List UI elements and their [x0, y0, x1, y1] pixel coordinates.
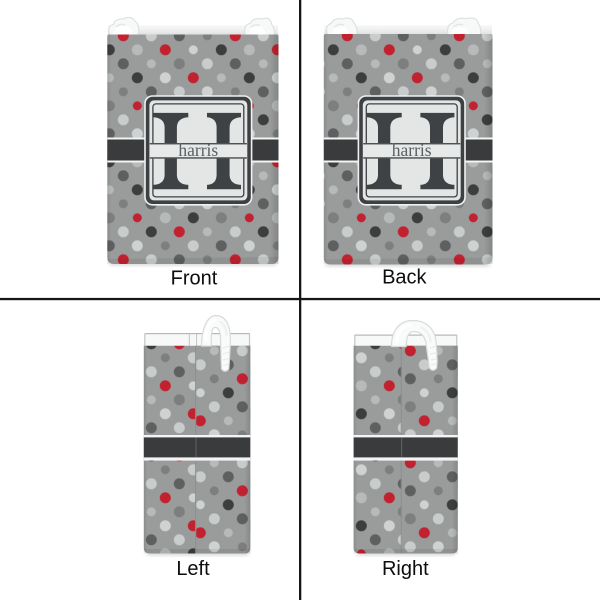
svg-text:Left: Left: [176, 558, 210, 580]
svg-text:harris: harris: [178, 140, 218, 160]
svg-text:harris: harris: [392, 140, 432, 160]
svg-text:Right: Right: [382, 558, 429, 580]
svg-text:Front: Front: [171, 268, 218, 290]
svg-text:Back: Back: [382, 267, 427, 289]
